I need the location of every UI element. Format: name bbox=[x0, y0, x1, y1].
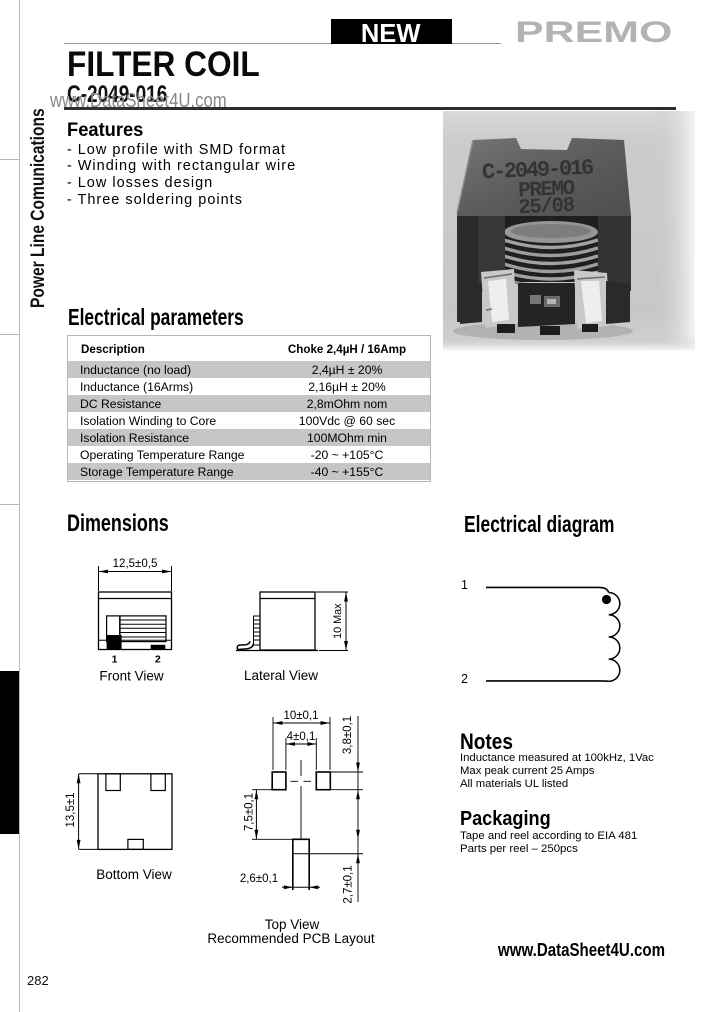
svg-text:7,5±0,1: 7,5±0,1 bbox=[244, 793, 256, 831]
svg-text:10 Max: 10 Max bbox=[332, 603, 344, 639]
svg-text:Lateral View: Lateral View bbox=[244, 668, 318, 683]
svg-text:Front View: Front View bbox=[99, 669, 164, 684]
svg-text:1: 1 bbox=[461, 578, 468, 592]
svg-text:13,5±1: 13,5±1 bbox=[65, 792, 77, 827]
svg-text:2: 2 bbox=[155, 653, 161, 665]
svg-text:2,7±0,1: 2,7±0,1 bbox=[343, 865, 355, 903]
svg-text:10±0,1: 10±0,1 bbox=[283, 710, 318, 722]
svg-text:Top View: Top View bbox=[265, 917, 320, 932]
svg-text:3,8±0,1: 3,8±0,1 bbox=[342, 716, 354, 754]
svg-text:Bottom View: Bottom View bbox=[96, 867, 172, 882]
svg-text:2: 2 bbox=[461, 672, 468, 686]
svg-text:Recommended PCB Layout: Recommended PCB Layout bbox=[207, 931, 375, 946]
svg-text:12,5±0,5: 12,5±0,5 bbox=[113, 558, 158, 570]
svg-text:4±0,1: 4±0,1 bbox=[287, 731, 316, 743]
svg-text:1: 1 bbox=[112, 653, 118, 665]
svg-text:2,6±0,1: 2,6±0,1 bbox=[240, 873, 278, 885]
